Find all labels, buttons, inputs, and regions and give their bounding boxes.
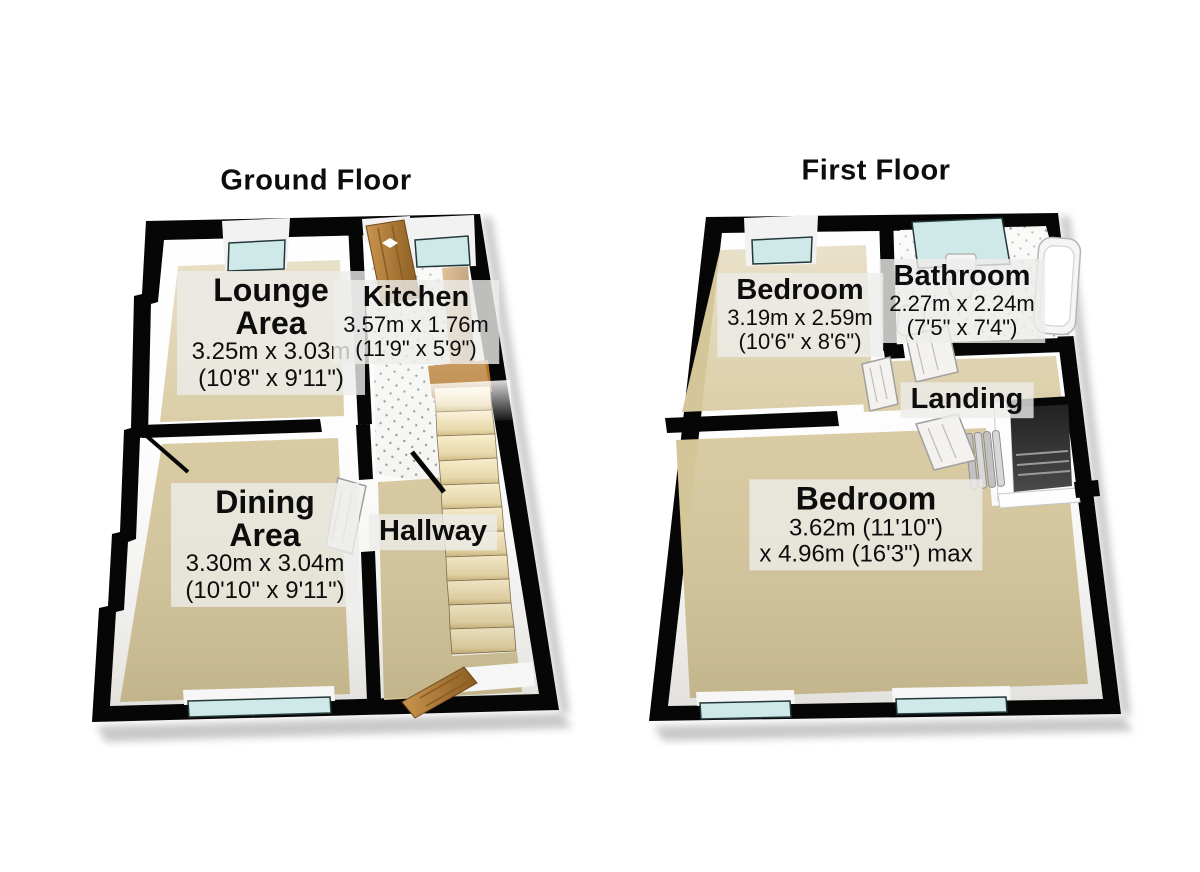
bedroom-main-name: Bedroom: [759, 482, 972, 515]
lounge-name: Lounge Area: [187, 274, 355, 339]
bathroom-dim-metric: 2.27m x 2.24m: [889, 292, 1035, 316]
bedroom-front-dim-metric: 3.19m x 2.59m: [727, 306, 873, 330]
bedroom-front-window: [744, 215, 818, 266]
bedroom-main-window-right: [892, 686, 1011, 714]
wall-dining-hall-upper: [356, 424, 373, 480]
kitchen-label: Kitchen 3.57m x 1.76m (11'9" x 5'9"): [333, 280, 499, 364]
dining-window: [183, 686, 335, 717]
landing-name: Landing: [911, 385, 1024, 415]
kitchen-name: Kitchen: [343, 283, 489, 313]
lounge-window: [222, 218, 290, 271]
kitchen-window: [408, 215, 476, 268]
lounge-dim-imperial: (10'8" x 9'11"): [187, 366, 355, 392]
first-floor-shadow: [654, 717, 1133, 741]
bedroom-front-label: Bedroom 3.19m x 2.59m (10'6" x 8'6"): [717, 273, 883, 357]
dining-dim-metric: 3.30m x 3.04m: [181, 551, 349, 577]
bedroom-main-dim-imperial: x 4.96m (16'3") max: [759, 541, 972, 567]
bathroom-dim-imperial: (7'5" x 7'4"): [889, 316, 1035, 340]
hallway-name: Hallway: [379, 517, 487, 547]
bathroom-label: Bathroom 2.27m x 2.24m (7'5" x 7'4"): [879, 259, 1045, 343]
dining-dim-imperial: (10'10" x 9'11"): [181, 578, 349, 604]
ground-floor-title: Ground Floor: [220, 165, 411, 198]
bathroom-name: Bathroom: [889, 262, 1035, 292]
floorplan-page: Ground Floor First Floor Lounge Area 3.2…: [0, 0, 1200, 872]
landing-label: Landing: [901, 382, 1034, 418]
bedroom-main-window-left: [696, 690, 795, 719]
hallway-label: Hallway: [369, 514, 497, 550]
lounge-dim-metric: 3.25m x 3.03m: [187, 339, 355, 365]
wall-bathroom-landing-left: [883, 344, 905, 359]
bedroom-front-name: Bedroom: [727, 276, 873, 306]
first-floor-title: First Floor: [802, 155, 951, 188]
dining-label: Dining Area 3.30m x 3.04m (10'10" x 9'11…: [171, 483, 359, 607]
bedroom-main-dim-metric: 3.62m (11'10"): [759, 515, 972, 541]
kitchen-dim-imperial: (11'9" x 5'9"): [343, 337, 489, 361]
kitchen-dim-metric: 3.57m x 1.76m: [343, 313, 489, 337]
bedroom-front-dim-imperial: (10'6" x 8'6"): [727, 330, 873, 354]
floorplan-graphic: [0, 0, 1200, 872]
bedroom-main-label: Bedroom 3.62m (11'10") x 4.96m (16'3") m…: [749, 479, 982, 570]
dining-name: Dining Area: [181, 486, 349, 551]
